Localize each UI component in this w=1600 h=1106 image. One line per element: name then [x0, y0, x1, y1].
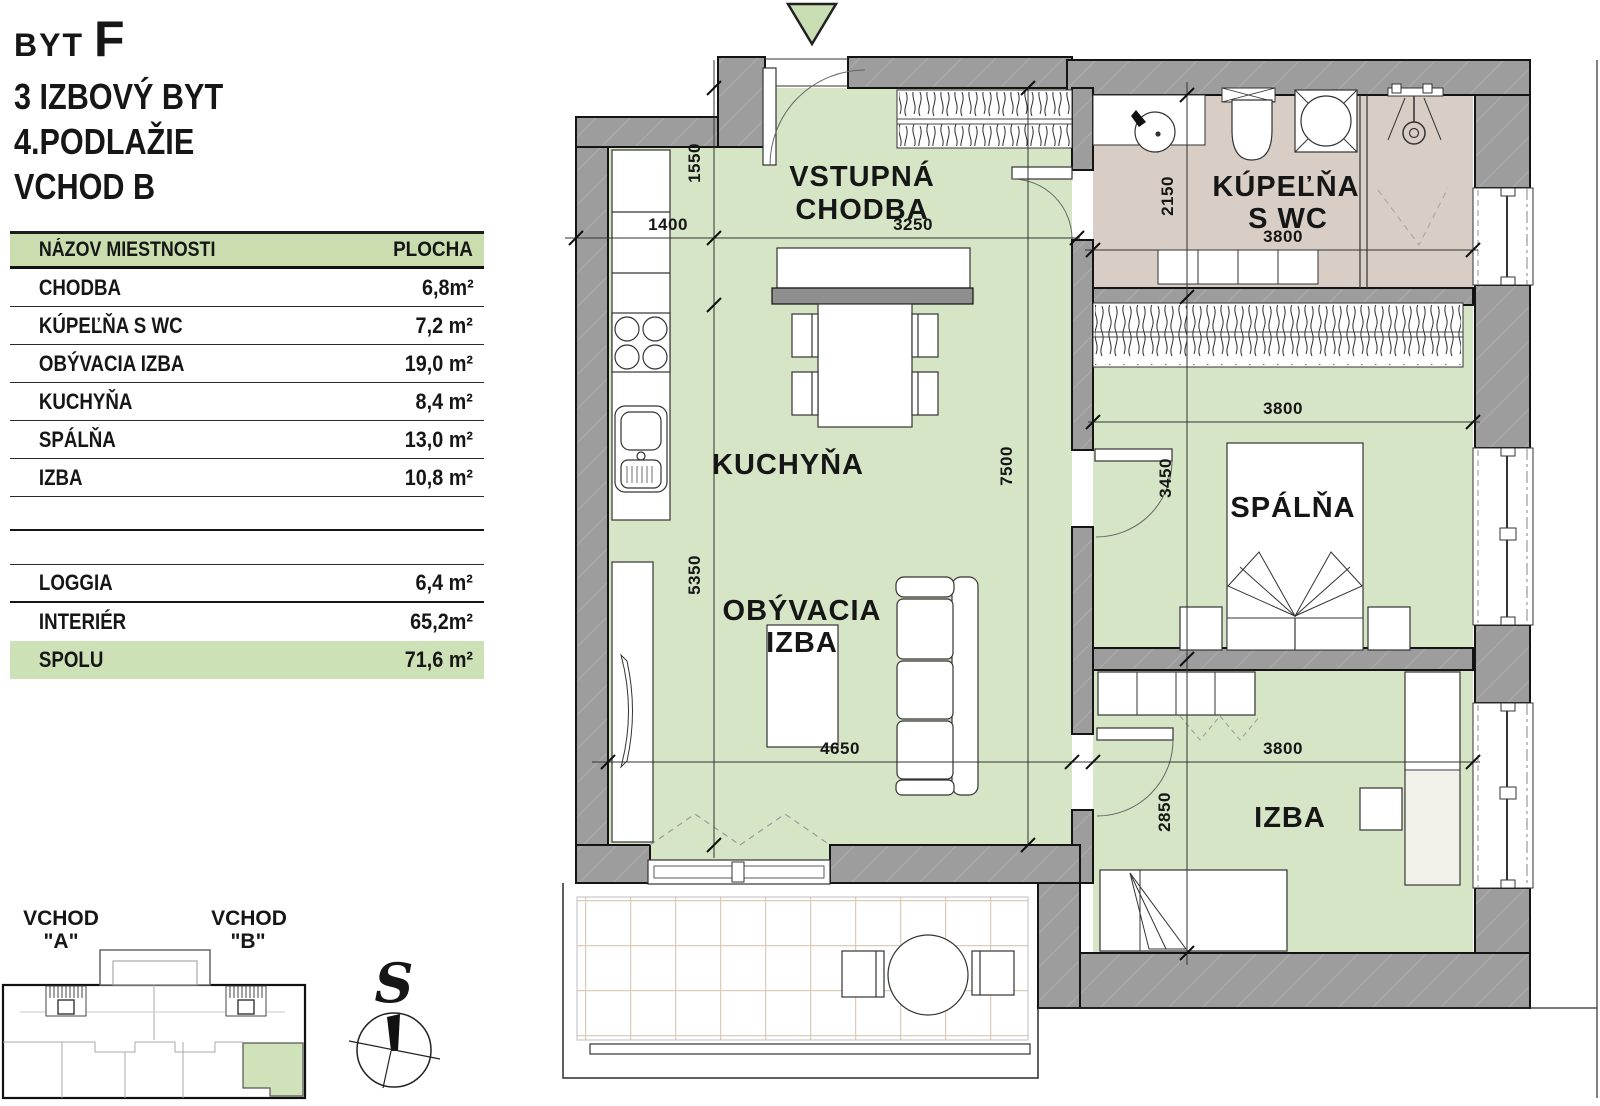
room-label-kuchyna: KUCHYŇA — [712, 447, 864, 481]
table-row-interier: INTERIÉR65,2m² — [10, 603, 484, 641]
dining-table — [818, 304, 912, 427]
col-name-header: NÁZOV MIESTNOSTI — [10, 238, 215, 262]
izba-window — [1473, 703, 1533, 888]
table-row-loggia: LOGGIA6,4 m² — [10, 565, 484, 603]
table-separator — [10, 497, 484, 531]
toilet — [1232, 100, 1272, 160]
keymap-vchod-b-label: VCHOD — [211, 907, 287, 930]
apartment-type: 3 IZBOVÝ BYT — [14, 74, 223, 119]
izba-table — [1360, 788, 1402, 830]
dim-3800-bedroom: 3800 — [1263, 399, 1303, 418]
bedroom-balcony-door — [1473, 448, 1533, 625]
room-label-vstupna-1: VSTUPNÁ — [789, 159, 935, 193]
bath-cabinets — [1158, 250, 1318, 284]
apartment-title: BYTF — [14, 10, 260, 68]
table-row: OBÝVACIA IZBA19,0 m² — [10, 345, 484, 383]
apartment-floor: 4.PODLAŽIE — [14, 119, 223, 164]
keymap-vchod-b-letter: "B" — [230, 930, 265, 953]
compass-north-label: S — [375, 951, 414, 1015]
room-name: SPÁLŇA — [10, 427, 116, 453]
dim-7500: 7500 — [997, 446, 1016, 486]
dim-2150: 2150 — [1158, 176, 1177, 216]
room-name: CHODBA — [10, 275, 121, 301]
room-label-obyvacia-1: OBÝVACIA — [723, 593, 882, 627]
table-row: CHODBA6,8m² — [10, 269, 484, 307]
bathroom-window — [1473, 188, 1533, 285]
table-separator — [10, 531, 484, 565]
compass: S — [349, 951, 440, 1088]
dim-4650: 4650 — [820, 739, 860, 758]
room-label-izba: IZBA — [1254, 802, 1326, 834]
kitchen-furniture — [612, 150, 670, 520]
keymap-vchod-a-label: VCHOD — [23, 907, 99, 930]
nightstand-left — [1180, 607, 1222, 650]
apartment-entrance: VCHOD B — [14, 164, 223, 209]
table-header-row: NÁZOV MIESTNOSTI PLOCHA — [10, 231, 484, 269]
table-row-total: SPOLU71,6 m² — [10, 641, 484, 679]
bedroom-wardrobe — [1093, 303, 1463, 367]
room-area: 65,2m² — [410, 609, 484, 635]
dim-1550: 1550 — [685, 143, 704, 183]
sink — [615, 406, 667, 492]
dim-3450: 3450 — [1156, 458, 1175, 498]
keymap-highlighted-unit — [243, 1043, 303, 1096]
dim-2850: 2850 — [1155, 792, 1174, 832]
keymap-staircase-b — [226, 986, 266, 1016]
room-area: 71,6 m² — [405, 647, 484, 673]
room-area: 6,8m² — [421, 275, 484, 301]
dim-3800-bath: 3800 — [1263, 227, 1303, 246]
col-area-header: PLOCHA — [393, 238, 484, 262]
washing-machine — [1295, 90, 1357, 152]
dim-5350: 5350 — [685, 555, 704, 595]
single-bed — [1100, 870, 1287, 951]
room-area: 6,4 m² — [416, 570, 484, 596]
room-label-spalna: SPÁLŇA — [1230, 490, 1355, 524]
area-table: NÁZOV MIESTNOSTI PLOCHA CHODBA6,8m² KÚPE… — [10, 231, 484, 679]
keymap: VCHOD "A" VCHOD "B" — [3, 907, 305, 1098]
room-area: 19,0 m² — [405, 351, 484, 377]
room-label-kupelna-1: KÚPEĽŇA — [1212, 169, 1359, 203]
room-name: SPOLU — [10, 647, 103, 673]
byt-label: BYT — [14, 27, 84, 63]
keymap-vchod-a-letter: "A" — [43, 930, 78, 953]
loggia-table — [888, 935, 968, 1015]
loggia-chair-left — [842, 951, 884, 997]
room-area: 10,8 m² — [405, 465, 484, 491]
entrance-arrow-icon — [788, 4, 836, 44]
room-area: 13,0 m² — [405, 427, 484, 453]
hall-wardrobe — [897, 90, 1072, 148]
loggia-railing — [590, 1044, 1030, 1054]
room-name: LOGGIA — [10, 570, 113, 596]
sideboard — [777, 248, 970, 288]
room-area: 8,4 m² — [416, 389, 484, 415]
room-area: 7,2 m² — [416, 313, 484, 339]
table-row: IZBA10,8 m² — [10, 459, 484, 497]
compass-needle-icon — [387, 1014, 400, 1051]
room-name: KUCHYŇA — [10, 389, 132, 415]
loggia-chair-right — [972, 951, 1014, 995]
keymap-staircase-a — [46, 986, 86, 1016]
room-name: KÚPEĽŇA S WC — [10, 313, 183, 339]
table-row: KÚPEĽŇA S WC7,2 m² — [10, 307, 484, 345]
room-name: IZBA — [10, 465, 83, 491]
dim-3250: 3250 — [893, 215, 933, 234]
room-name: INTERIÉR — [10, 609, 126, 635]
nightstand-right — [1368, 607, 1410, 650]
dim-3800-izba: 3800 — [1263, 739, 1303, 758]
table-row: KUCHYŇA8,4 m² — [10, 383, 484, 421]
unit-letter: F — [94, 11, 125, 67]
title-block: BYTF 3 IZBOVÝ BYT 4.PODLAŽIE VCHOD B — [14, 10, 260, 209]
page: VSTUPNÁ CHODBA KUCHYŇA OBÝVACIA IZBA KÚP… — [0, 0, 1600, 1106]
room-name: OBÝVACIA IZBA — [10, 351, 184, 377]
sideboard-edge — [772, 288, 973, 304]
table-row: SPÁLŇA13,0 m² — [10, 421, 484, 459]
dim-1400: 1400 — [648, 215, 688, 234]
room-label-obyvacia-2: IZBA — [766, 627, 838, 659]
